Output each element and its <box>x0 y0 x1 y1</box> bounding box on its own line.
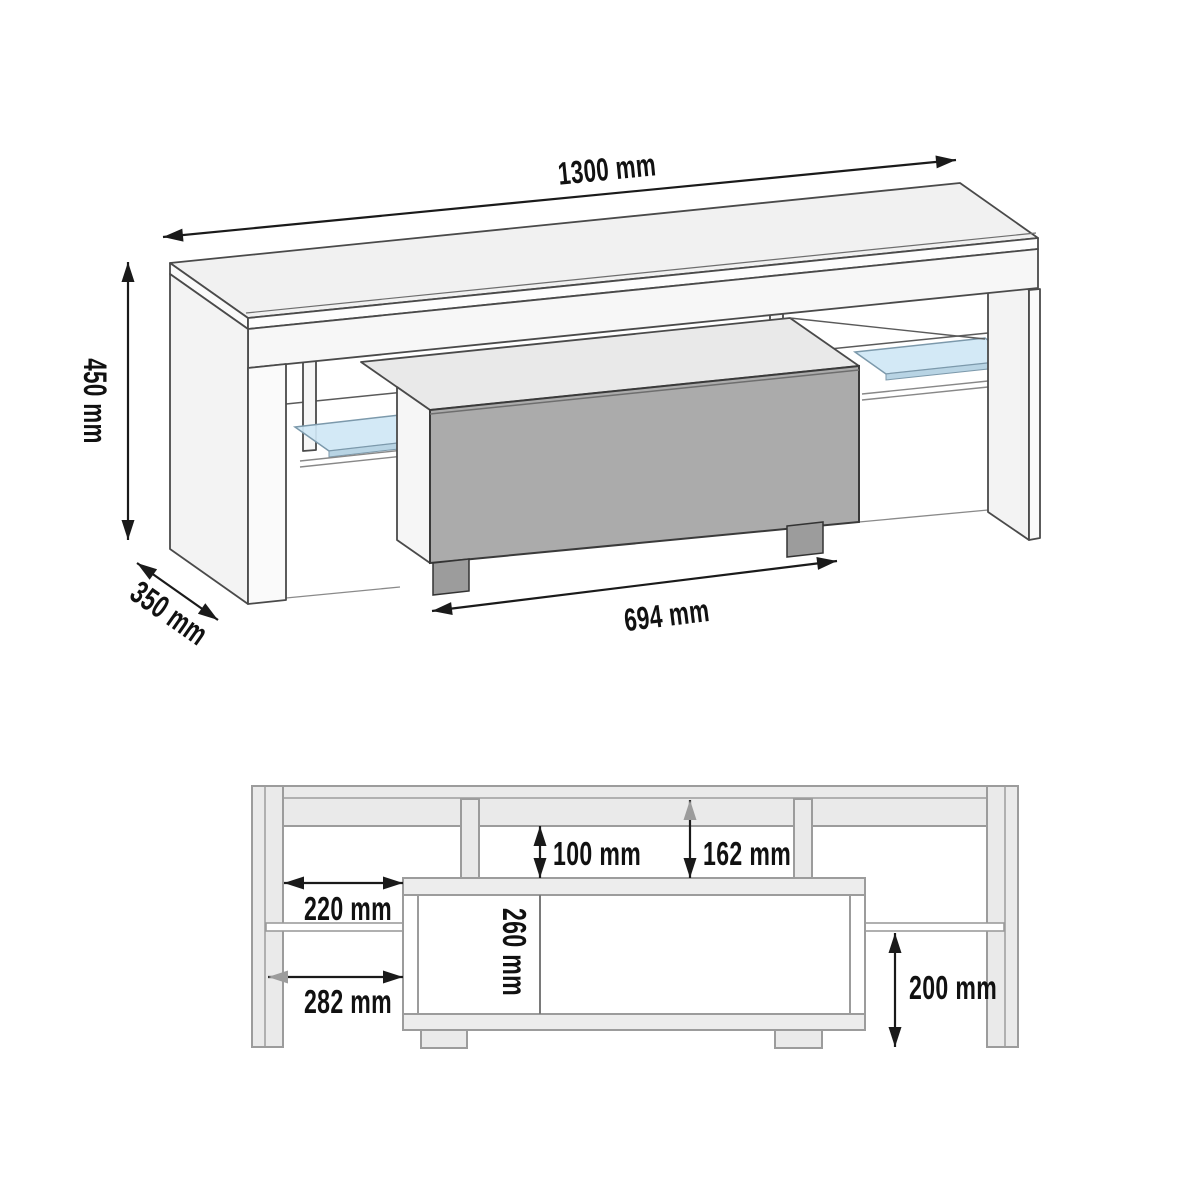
dim-height-label: 450 mm <box>77 358 113 444</box>
front-divider-right <box>794 799 812 878</box>
front-top-panel <box>252 786 1018 826</box>
dim-side-offset-label: 282 mm <box>304 984 392 1021</box>
front-drawer-box <box>403 878 865 1048</box>
dimension-diagram: 1300 mm 450 mm 350 mm 694 mm <box>0 0 1200 1200</box>
dim-inner-height-label: 260 mm <box>495 908 532 996</box>
left-leg-outer-face <box>170 274 248 604</box>
left-leg-front-edge <box>248 364 286 604</box>
front-right-leg <box>987 786 1018 1047</box>
dim-top-gap-label: 100 mm <box>553 836 641 873</box>
front-drawer-foot-left <box>421 1030 467 1048</box>
front-drawer-outline <box>403 878 865 1030</box>
dim-shelf-clearance-label: 200 mm <box>909 970 997 1007</box>
drawer-side-face <box>397 387 430 563</box>
front-drawer-top-band <box>403 878 865 895</box>
dim-side-gap-label: 220 mm <box>304 891 392 928</box>
front-left-leg <box>252 786 283 1047</box>
diagram-canvas: 1300 mm 450 mm 350 mm 694 mm <box>0 0 1200 1200</box>
front-shelf-right <box>865 923 1004 931</box>
front-divider-left <box>461 799 479 878</box>
dim-top-offset-label: 162 mm <box>703 836 791 873</box>
drawer-foot-right <box>787 522 823 557</box>
drawer-foot-left <box>433 559 469 595</box>
front-drawer-foot-right <box>775 1030 822 1048</box>
right-leg-inner-face <box>988 261 1029 540</box>
front-drawer-bottom-band <box>403 1014 865 1030</box>
right-leg-front-edge <box>1029 289 1040 540</box>
